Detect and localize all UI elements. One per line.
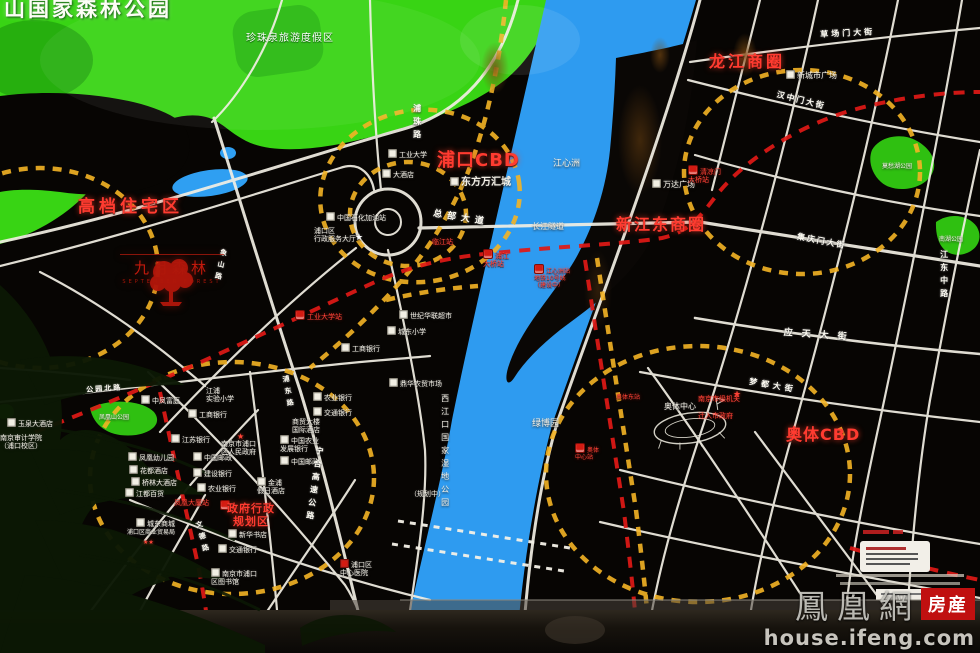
watermark-tag-badge: 房産 — [921, 588, 975, 620]
watermark-brand: 鳳凰網 — [795, 587, 921, 626]
watermark-row: 鳳凰網房産 — [764, 580, 975, 628]
map-board-photo: 东方万汇城新城市广场万达广场工业大学大酒店中国石化加油站浦口区 行政服务大厅★世… — [0, 0, 980, 653]
watermark-url: house.ifeng.com — [764, 626, 975, 650]
palm-leaves — [0, 0, 980, 653]
watermark: 鳳凰網房産 house.ifeng.com — [764, 580, 975, 650]
